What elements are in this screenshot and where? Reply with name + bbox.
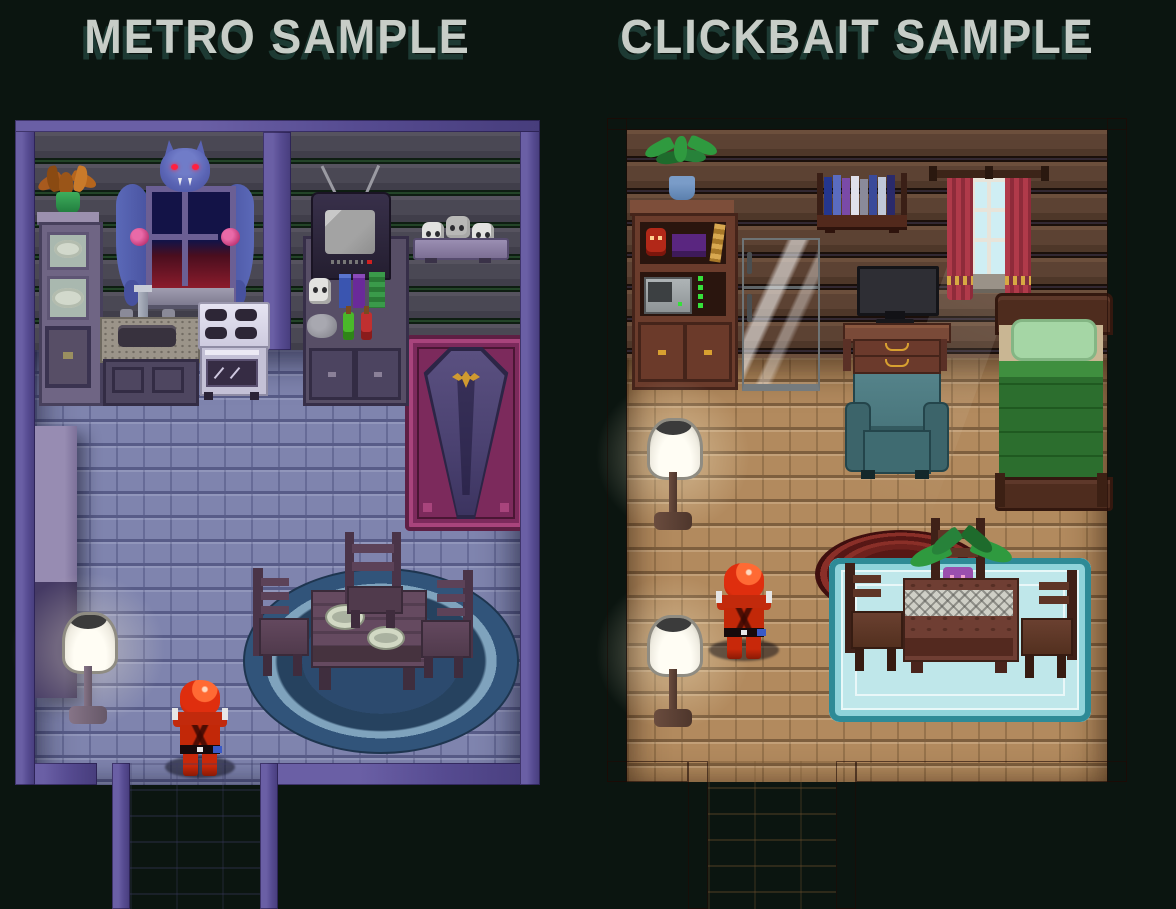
corridor-floor — [130, 763, 260, 909]
rug-corner-motif — [423, 503, 432, 512]
book — [369, 272, 385, 308]
clickbait-top-wall — [607, 118, 1127, 130]
drawer-handle — [885, 343, 909, 351]
kitchen-sink — [100, 285, 196, 400]
clickbait-south-doorway — [688, 761, 856, 909]
lamp-pole — [669, 669, 677, 713]
metro-room — [15, 120, 540, 785]
bat-head — [160, 140, 210, 192]
plates — [54, 240, 82, 258]
refrigerator — [742, 238, 816, 382]
burner — [205, 327, 227, 339]
coffin-rug — [405, 335, 527, 531]
clickbait-bottom-wall — [856, 761, 1127, 782]
floor-lamp — [645, 615, 701, 735]
metro-right-wall — [520, 120, 540, 785]
monitor — [857, 266, 939, 316]
sink-basin — [118, 325, 176, 347]
bed — [995, 293, 1107, 509]
oven-handle — [205, 350, 259, 355]
corridor-floor — [708, 761, 836, 909]
player-character — [717, 563, 771, 659]
corridor-wall — [836, 761, 856, 909]
hutch-cabinet — [630, 136, 734, 384]
lamp-base — [69, 706, 107, 724]
bat-eye — [192, 164, 199, 170]
book — [878, 177, 886, 215]
lamp-base — [654, 512, 692, 530]
lace-runner — [905, 590, 1013, 616]
blanket — [999, 361, 1103, 477]
drawer-handle — [885, 359, 909, 367]
book — [353, 274, 365, 308]
clickbait-left-wall — [607, 118, 627, 782]
metro-top-wall — [15, 120, 540, 132]
book — [824, 177, 832, 215]
metro-left-wall — [15, 120, 35, 785]
chair — [1019, 570, 1077, 682]
plant-stand-cabinet — [37, 166, 99, 400]
fridge-handle — [747, 252, 752, 274]
character-shadow — [709, 639, 779, 661]
pixel-art-showcase: METRO SAMPLE CLICKBAIT SAMPLE — [0, 0, 1176, 909]
tv-screen — [325, 210, 375, 254]
cabinet-door — [355, 348, 401, 400]
curtain-bow — [221, 228, 240, 246]
shelf-board — [413, 238, 509, 260]
skull-shelf — [413, 216, 505, 266]
floor-lamp — [60, 612, 116, 732]
book — [842, 178, 850, 215]
book — [833, 175, 841, 215]
chair — [253, 568, 307, 678]
clickbait-right-wall — [1107, 118, 1127, 782]
cabinet-door — [112, 367, 144, 393]
bat-eye — [171, 164, 178, 170]
skull-icon — [446, 216, 470, 238]
corridor-wall — [688, 761, 708, 909]
green-potion — [343, 312, 354, 340]
character-helmet — [724, 563, 764, 599]
book — [887, 175, 895, 215]
chair — [845, 563, 901, 675]
stone-bowl — [307, 314, 337, 338]
skull-icon — [309, 278, 331, 304]
led-lights — [698, 276, 703, 281]
metro-south-doorway — [112, 763, 278, 909]
cabinet-door — [684, 322, 732, 382]
lamp-pole — [84, 666, 92, 710]
metro-bottom-wall — [263, 763, 540, 785]
book — [860, 179, 868, 215]
burner — [205, 309, 227, 321]
plates — [52, 288, 84, 308]
clickbait-title: CLICKBAIT SAMPLE — [570, 12, 1145, 61]
pillow — [1011, 319, 1097, 361]
armchair — [845, 358, 945, 480]
chair — [419, 570, 473, 680]
cabinet-door — [309, 348, 355, 400]
tv-power-light — [367, 260, 372, 264]
curtain-bow — [130, 228, 149, 246]
burner — [235, 309, 257, 321]
dining-table — [903, 578, 1015, 674]
dinner-plate — [367, 626, 405, 650]
stove — [198, 302, 266, 400]
tv-shelf-unit — [301, 160, 405, 400]
chair — [345, 532, 401, 628]
red-mask — [646, 228, 666, 256]
plant-pot — [669, 176, 695, 200]
red-potion — [361, 312, 372, 340]
character-belt — [180, 745, 220, 754]
lamp-shade — [62, 612, 118, 674]
footboard — [995, 477, 1113, 511]
lamp-base — [654, 709, 692, 727]
wall-book-shelf — [817, 173, 907, 233]
clickbait-room — [607, 118, 1127, 782]
curtain-trim — [1005, 276, 1031, 285]
character-belt — [724, 628, 764, 637]
curtain-trim — [947, 276, 973, 285]
lamp-shade — [647, 615, 703, 677]
floor-lamp — [645, 418, 701, 538]
cabinet-door — [152, 367, 184, 393]
fridge-handle — [747, 294, 752, 322]
book — [869, 175, 877, 215]
burner — [235, 327, 257, 339]
book — [339, 274, 351, 308]
lamp-pole — [669, 472, 677, 516]
purple-book — [672, 234, 706, 257]
lamp-shade — [647, 418, 703, 480]
character-helmet — [180, 680, 220, 716]
book — [851, 176, 859, 215]
metro-title: METRO SAMPLE — [15, 12, 540, 61]
corridor-wall — [112, 763, 130, 909]
rug-corner-motif — [500, 503, 509, 512]
corridor-wall — [260, 763, 278, 909]
player-character — [173, 680, 227, 776]
cabinet-door — [638, 322, 686, 382]
plant-pot — [56, 192, 80, 214]
